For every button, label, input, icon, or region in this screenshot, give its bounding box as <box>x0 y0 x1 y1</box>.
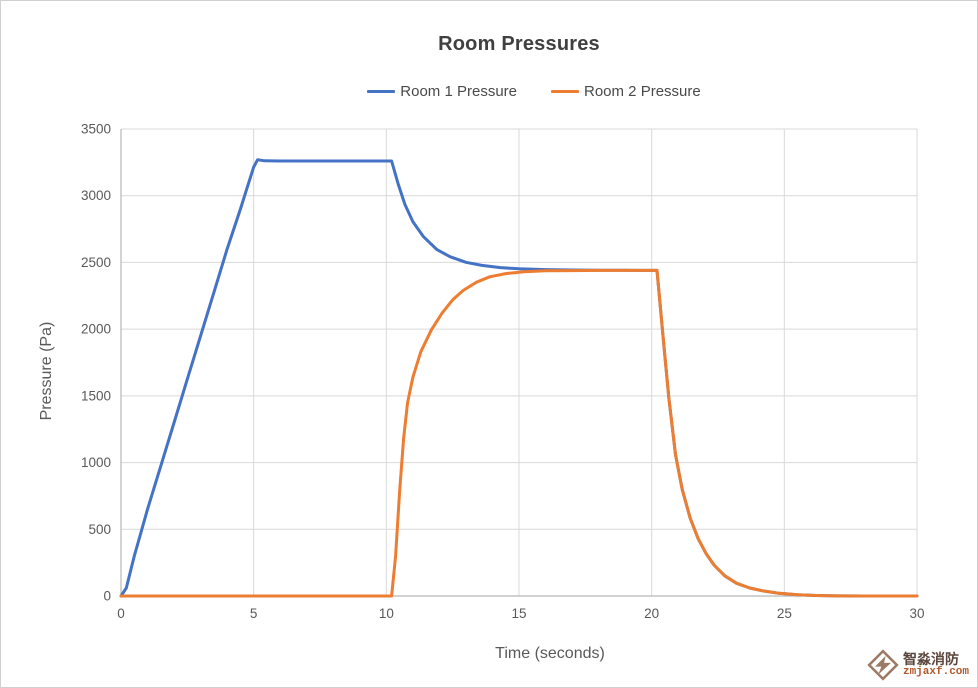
y-tick-label: 2500 <box>81 255 111 270</box>
x-tick-label: 0 <box>117 606 125 621</box>
x-tick-label: 5 <box>250 606 258 621</box>
y-tick-label: 3000 <box>81 188 111 203</box>
chart-window: Room Pressures Room 1 Pressure Room 2 Pr… <box>0 0 978 688</box>
zmjaxf-logo-icon <box>867 649 899 681</box>
plot-area: 0500100015002000250030003500051015202530 <box>1 1 978 688</box>
x-tick-label: 30 <box>909 606 924 621</box>
x-axis-title: Time (seconds) <box>121 645 978 663</box>
y-tick-label: 1000 <box>81 455 111 470</box>
y-tick-label: 2000 <box>81 322 111 337</box>
watermark: 智淼消防 zmjaxf.com <box>867 649 969 681</box>
y-tick-label: 3500 <box>81 122 111 137</box>
y-axis-title: Pressure (Pa) <box>38 311 56 431</box>
x-tick-label: 15 <box>511 606 526 621</box>
y-tick-label: 500 <box>88 522 111 537</box>
y-tick-label: 0 <box>103 589 111 604</box>
x-tick-label: 20 <box>644 606 659 621</box>
x-tick-label: 25 <box>777 606 792 621</box>
x-tick-label: 10 <box>379 606 394 621</box>
watermark-company-name: 智淼消防 <box>903 652 969 667</box>
watermark-domain: zmjaxf.com <box>903 667 969 679</box>
y-tick-label: 1500 <box>81 388 111 403</box>
